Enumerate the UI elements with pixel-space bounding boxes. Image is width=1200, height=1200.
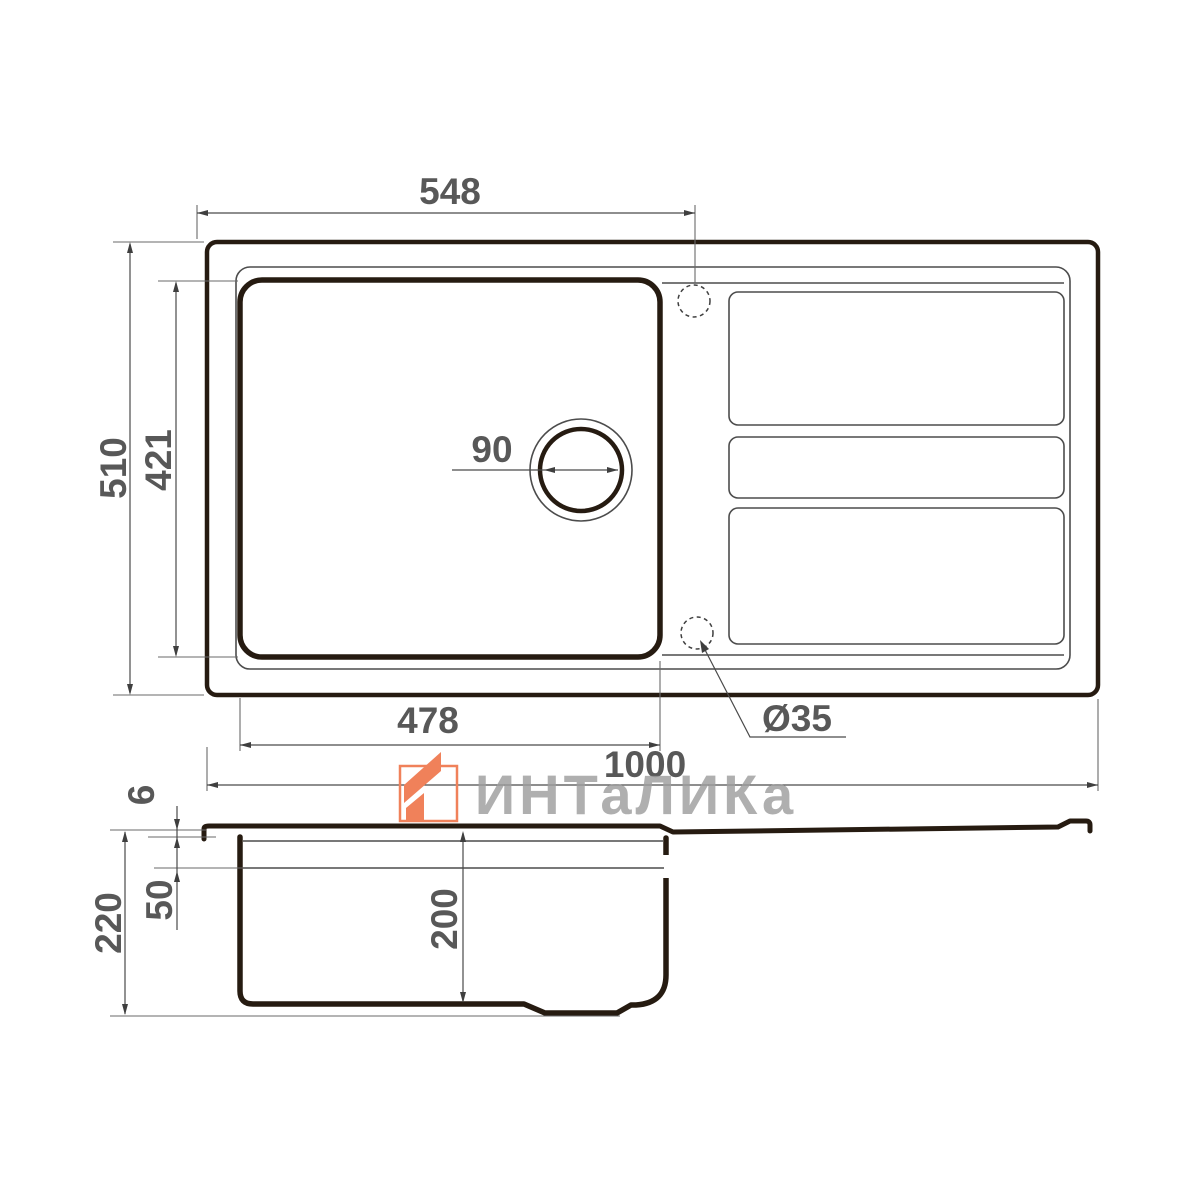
brand-watermark-text: ИНТаЛИКа [475,763,797,826]
dim-label-510: 510 [93,437,134,499]
brand-watermark: ИНТаЛИКа [400,752,797,826]
dim-label-220: 220 [88,892,129,954]
dim-label-478: 478 [397,700,459,741]
dim-label-6: 6 [121,785,162,806]
drainboard-groove-3 [729,508,1064,644]
dim-label-548: 548 [419,171,481,212]
inner-rim-outline [236,267,1070,669]
outer-contour [207,242,1098,695]
top-view-dimensions: 548 510 421 90 478 1000 [93,171,1098,791]
dim-label-90: 90 [471,429,512,470]
sink-section-view [204,821,1090,1013]
sink-top-view [207,242,1098,695]
drainboard-groove-2 [729,437,1064,498]
tap-hole-bottom [681,617,713,649]
drainboard-groove-1 [729,292,1064,425]
bowl-outline [240,280,660,657]
dim-label-tap-hole: Ø35 [762,698,832,739]
dim-label-421: 421 [138,429,179,491]
dim-label-50: 50 [139,879,180,920]
section-wall-slot [661,855,671,878]
tap-hole-top [678,285,710,317]
sink-technical-drawing: 548 510 421 90 478 1000 [0,0,1200,1200]
dim-label-200: 200 [424,888,465,950]
technical-drawing-page: 548 510 421 90 478 1000 [0,0,1200,1200]
brand-logo-icon [400,752,457,821]
